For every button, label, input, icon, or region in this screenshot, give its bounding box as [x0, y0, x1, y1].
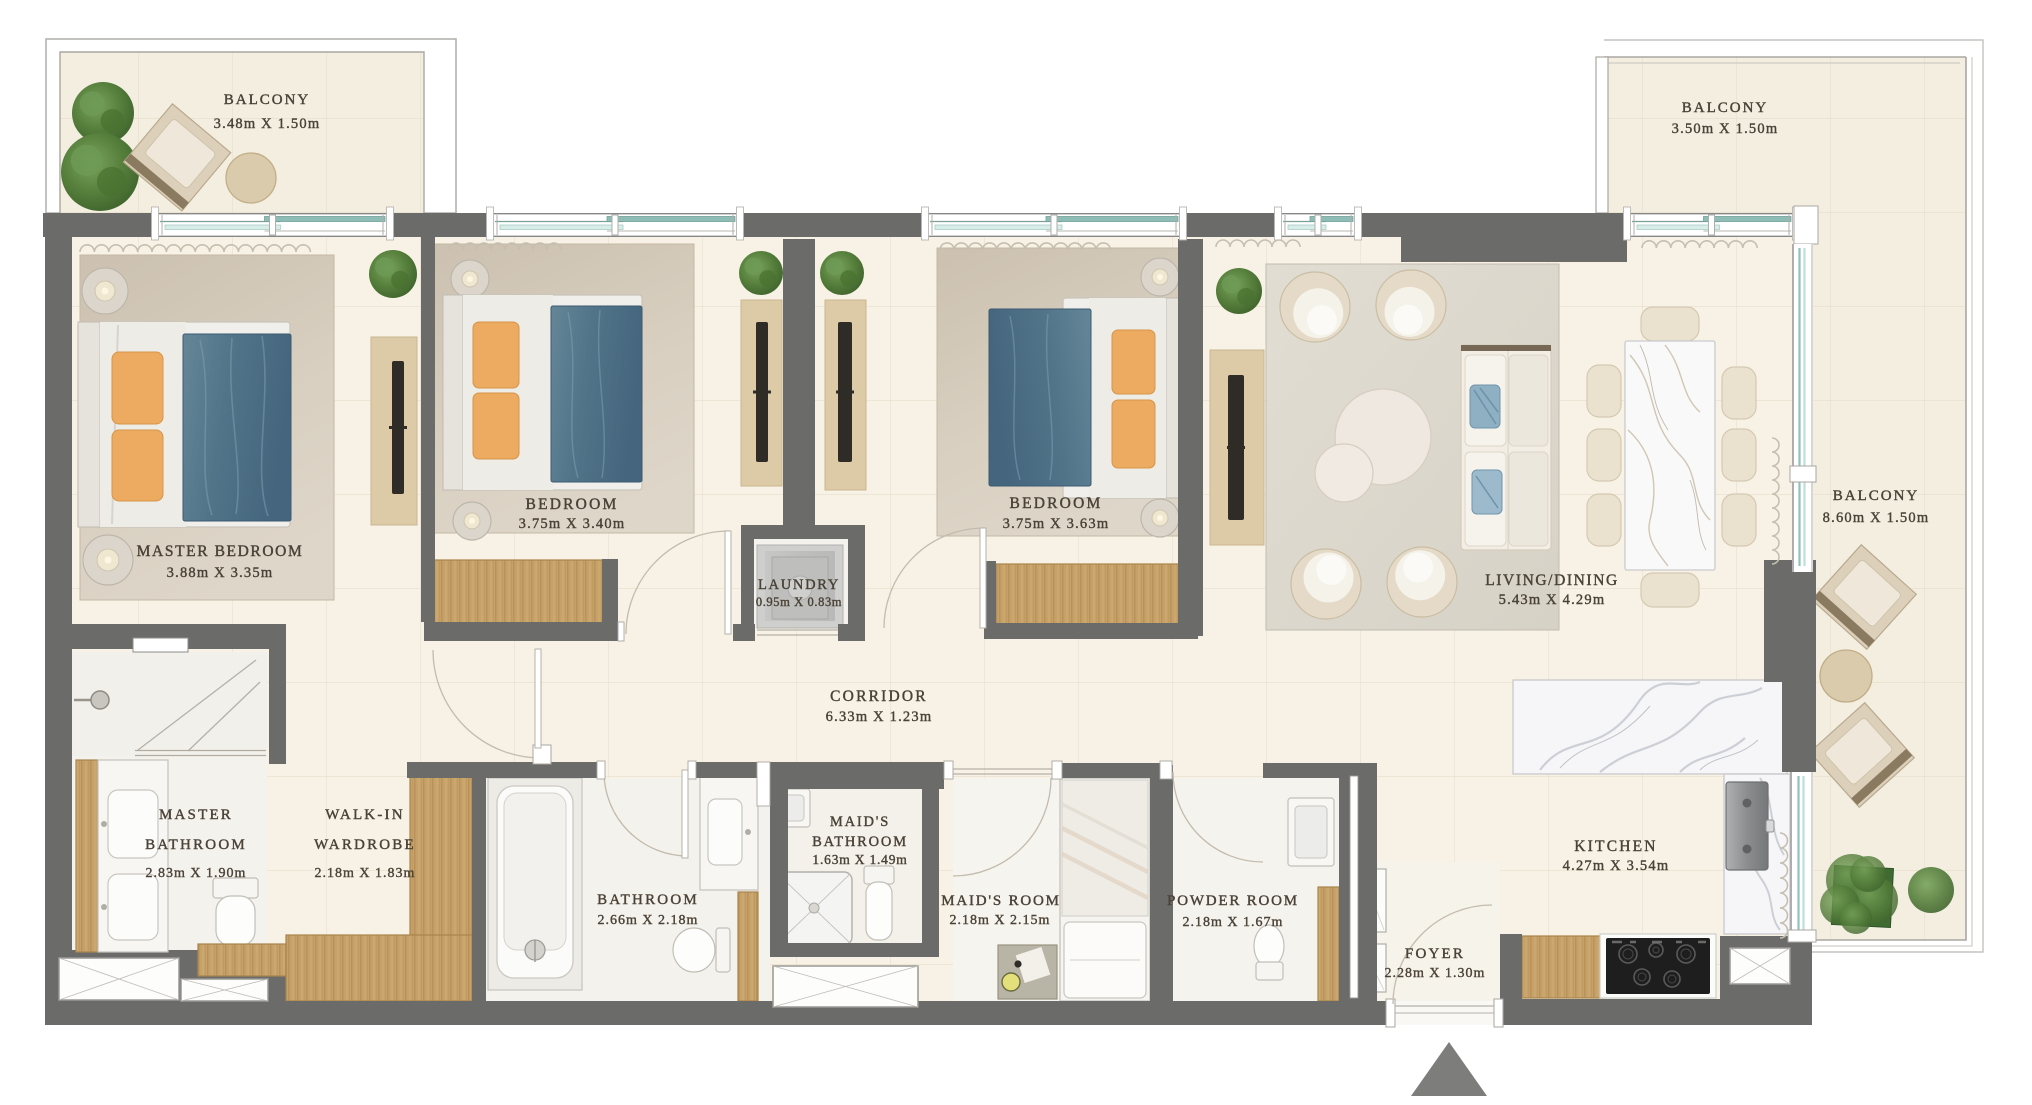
svg-text:6.33m X 1.23m: 6.33m X 1.23m: [826, 709, 933, 725]
svg-text:WARDROBE: WARDROBE: [314, 837, 416, 853]
svg-text:BALCONY: BALCONY: [1682, 100, 1769, 116]
svg-text:CORRIDOR: CORRIDOR: [830, 688, 928, 705]
svg-text:KITCHEN: KITCHEN: [1574, 838, 1657, 855]
svg-text:BATHROOM: BATHROOM: [812, 834, 908, 850]
svg-text:3.75m X 3.40m: 3.75m X 3.40m: [519, 516, 626, 532]
svg-text:BATHROOM: BATHROOM: [597, 892, 699, 908]
svg-text:BEDROOM: BEDROOM: [526, 496, 619, 513]
svg-text:BALCONY: BALCONY: [224, 92, 311, 108]
svg-text:BATHROOM: BATHROOM: [145, 837, 247, 853]
svg-text:0.95m X 0.83m: 0.95m X 0.83m: [756, 595, 842, 609]
svg-text:2.83m X 1.90m: 2.83m X 1.90m: [146, 866, 247, 881]
svg-text:POWDER ROOM: POWDER ROOM: [1167, 893, 1299, 909]
svg-text:3.88m X 3.35m: 3.88m X 3.35m: [167, 565, 274, 581]
svg-text:1.63m X 1.49m: 1.63m X 1.49m: [812, 852, 907, 867]
svg-text:8.60m X 1.50m: 8.60m X 1.50m: [1823, 510, 1930, 526]
svg-text:2.66m X 2.18m: 2.66m X 2.18m: [598, 913, 699, 928]
svg-text:4.27m X 3.54m: 4.27m X 3.54m: [1563, 858, 1670, 874]
svg-text:MAID'S: MAID'S: [830, 814, 890, 830]
svg-text:3.75m X 3.63m: 3.75m X 3.63m: [1003, 516, 1110, 532]
svg-text:WALK-IN: WALK-IN: [325, 807, 405, 823]
svg-text:LIVING/DINING: LIVING/DINING: [1485, 572, 1619, 589]
svg-text:2.28m X 1.30m: 2.28m X 1.30m: [1385, 966, 1486, 981]
svg-text:3.48m X 1.50m: 3.48m X 1.50m: [214, 116, 321, 132]
svg-text:2.18m X 1.67m: 2.18m X 1.67m: [1183, 915, 1284, 930]
svg-text:BEDROOM: BEDROOM: [1010, 495, 1103, 512]
svg-text:LAUNDRY: LAUNDRY: [758, 577, 840, 593]
svg-text:MASTER BEDROOM: MASTER BEDROOM: [137, 543, 304, 560]
svg-text:MAID'S ROOM: MAID'S ROOM: [941, 893, 1061, 909]
svg-text:BALCONY: BALCONY: [1833, 488, 1920, 504]
svg-text:2.18m X 1.83m: 2.18m X 1.83m: [315, 866, 416, 881]
svg-text:MASTER: MASTER: [159, 807, 233, 823]
svg-text:3.50m X 1.50m: 3.50m X 1.50m: [1672, 121, 1779, 137]
svg-text:5.43m X 4.29m: 5.43m X 4.29m: [1499, 592, 1606, 608]
svg-text:FOYER: FOYER: [1405, 946, 1465, 962]
svg-text:2.18m X 2.15m: 2.18m X 2.15m: [950, 913, 1051, 928]
